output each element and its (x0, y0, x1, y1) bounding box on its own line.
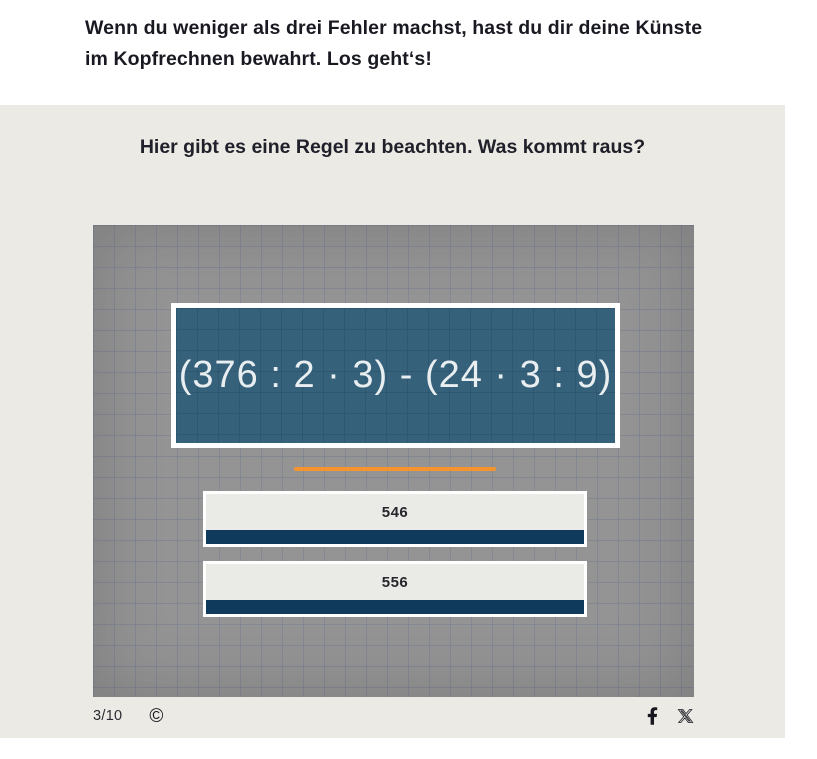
question-title: Hier gibt es eine Regel zu beachten. Was… (113, 132, 673, 162)
expression-box: (376 : 2 · 3) - (24 · 3 : 9) (171, 303, 620, 448)
answer-underline-bar (206, 530, 584, 544)
answer-option-2[interactable]: 556 (203, 561, 587, 617)
answer-label: 546 (206, 494, 584, 530)
copyright-icon[interactable]: © (149, 707, 163, 726)
answer-label: 556 (206, 564, 584, 600)
answer-option-1[interactable]: 546 (203, 491, 587, 547)
intro-text: Wenn du weniger als drei Fehler machst, … (85, 13, 703, 75)
orange-underline (294, 467, 496, 471)
facebook-share-button[interactable] (647, 707, 658, 725)
x-share-button[interactable] (677, 708, 694, 724)
expression-text: (376 : 2 · 3) - (24 · 3 : 9) (179, 354, 612, 397)
progress-counter: 3/10 (93, 708, 122, 724)
quiz-card: Hier gibt es eine Regel zu beachten. Was… (0, 105, 785, 738)
card-footer: 3/10 © (93, 701, 694, 731)
question-board: (376 : 2 · 3) - (24 · 3 : 9) 546 556 (93, 225, 694, 697)
facebook-icon (647, 707, 658, 725)
answer-underline-bar (206, 600, 584, 614)
x-icon (677, 708, 694, 724)
quiz-page: Wenn du weniger als drei Fehler machst, … (0, 0, 817, 759)
